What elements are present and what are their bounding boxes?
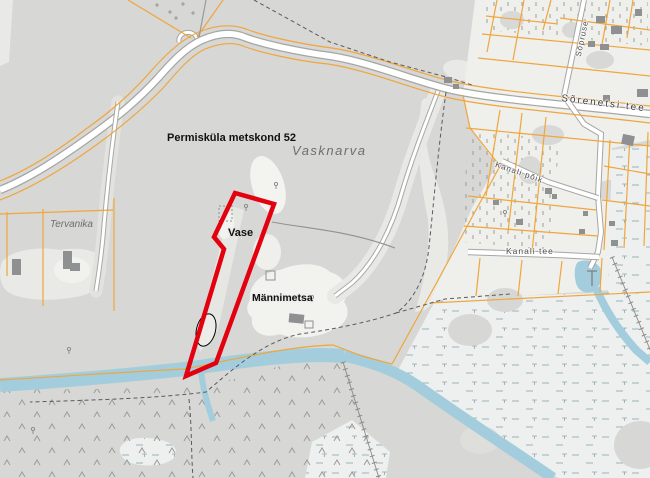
map-canvas[interactable]: Permisküla metskond 52 Vasknarva Vase Mä… [0, 0, 650, 478]
